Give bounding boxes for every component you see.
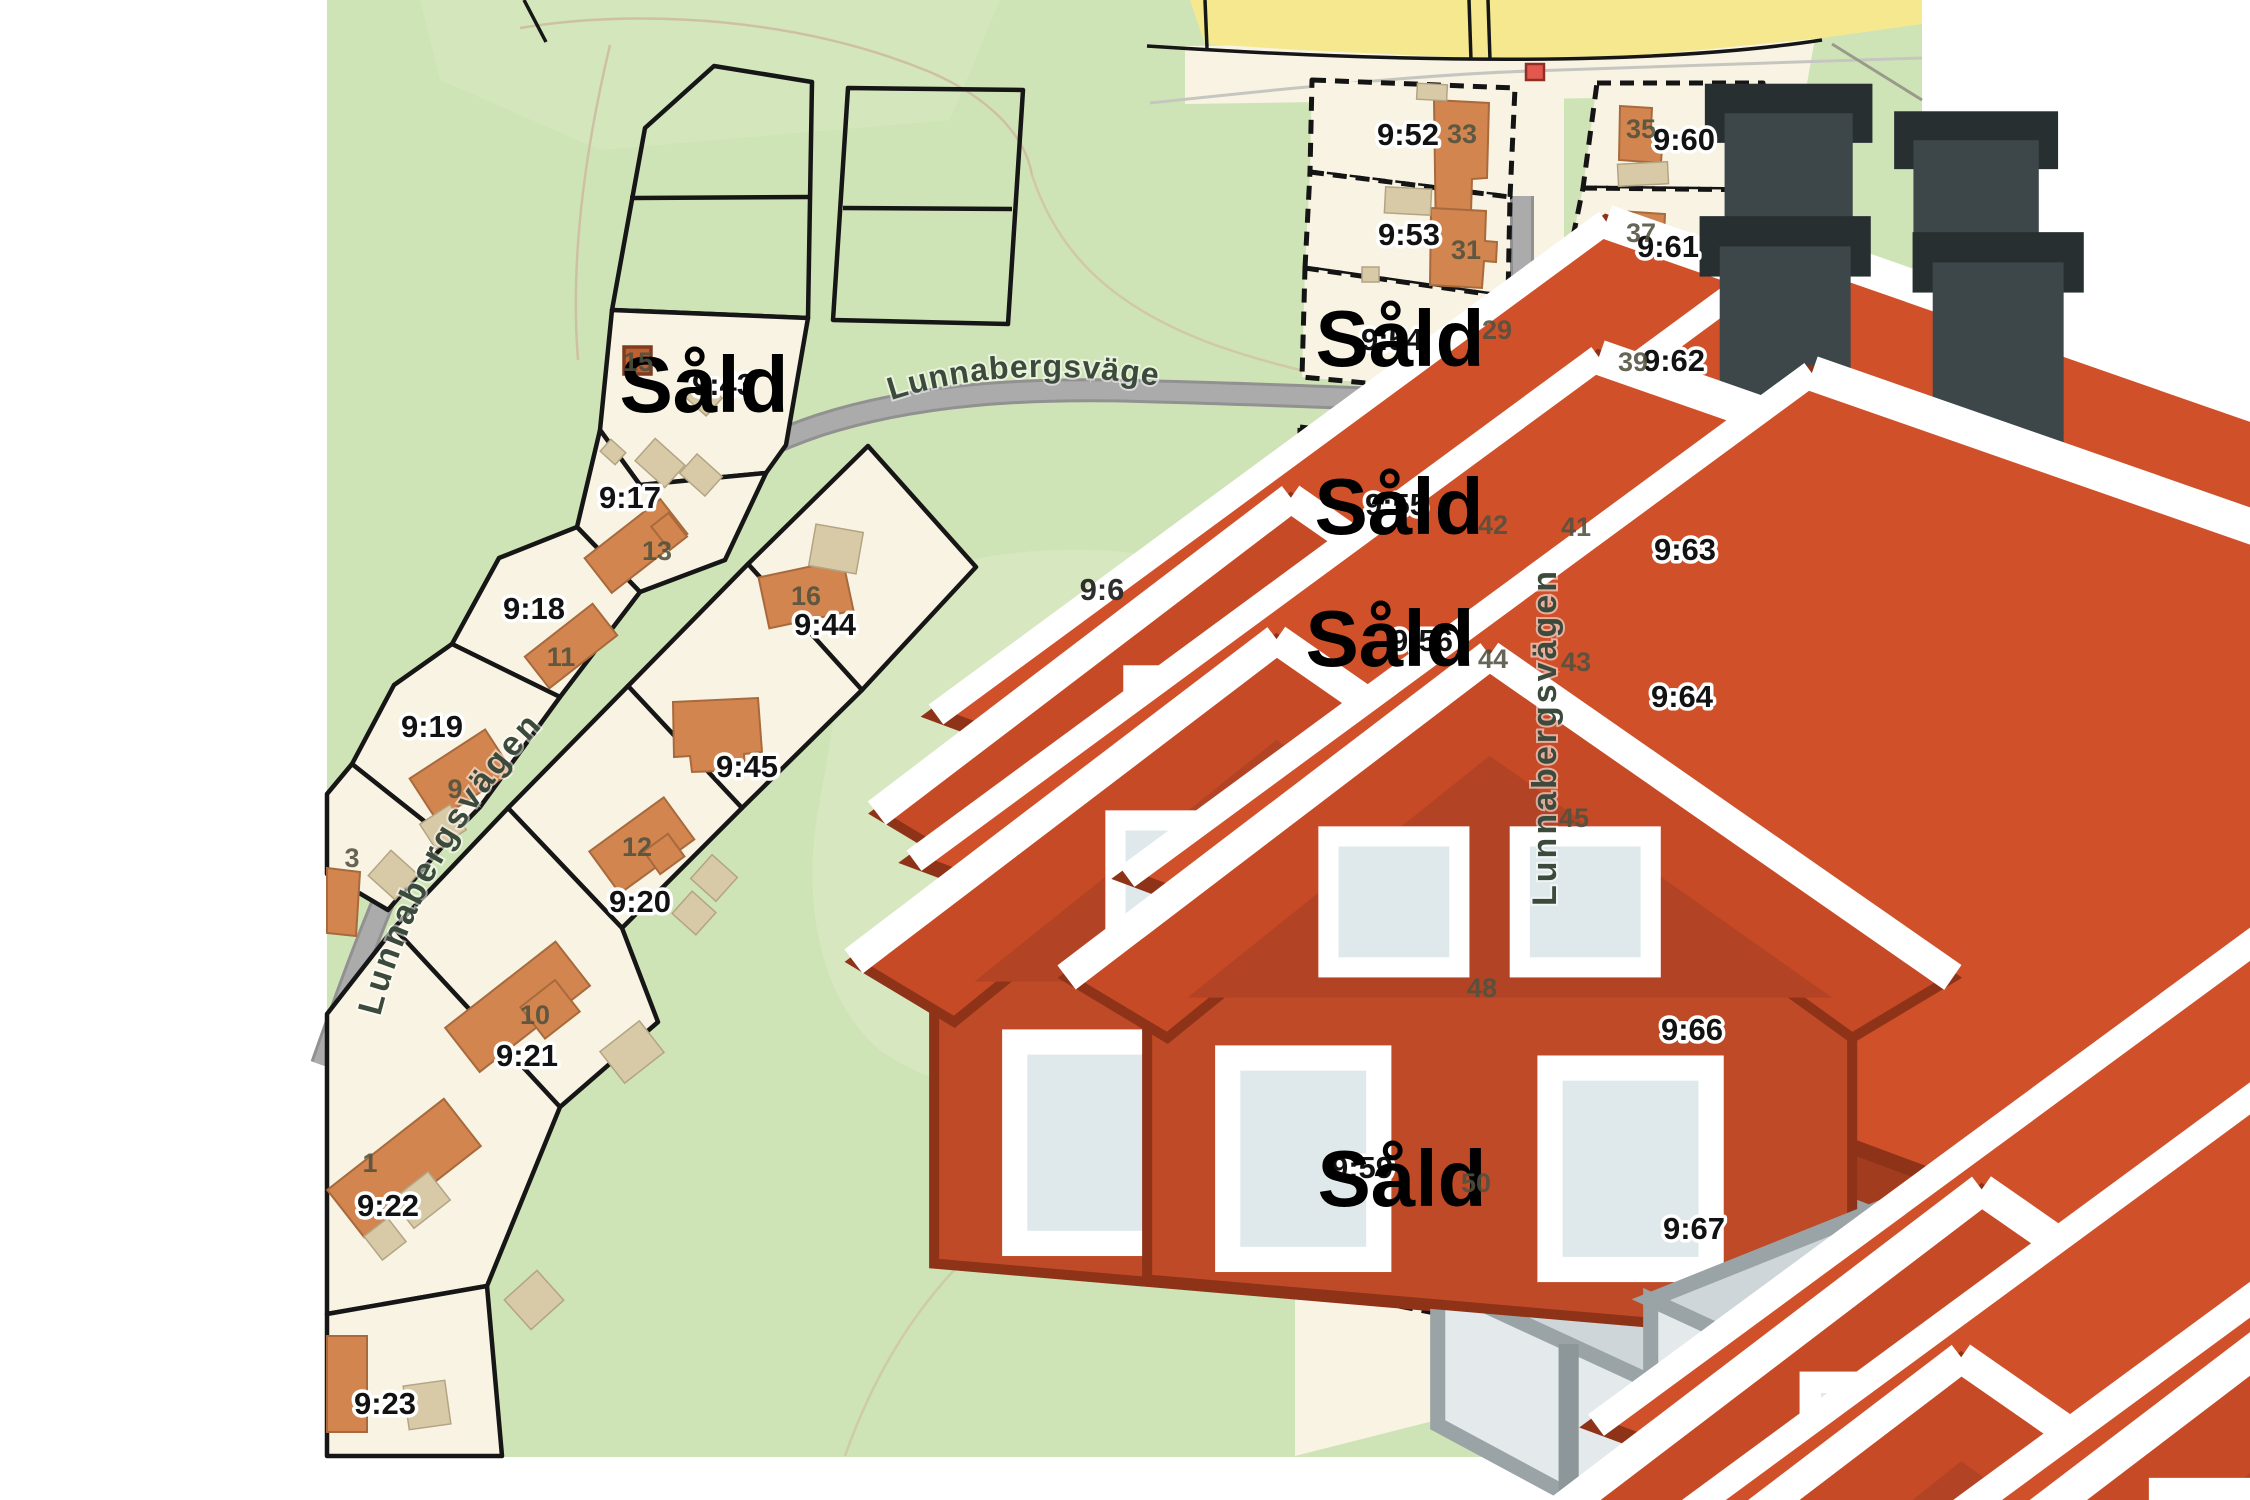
- sold-label: Såld: [1316, 294, 1485, 383]
- sold-label: Såld: [1315, 462, 1484, 551]
- house-number-43: 43: [1561, 647, 1591, 677]
- house-number-37: 37: [1626, 218, 1656, 248]
- parcel-label-9-64: 9:64: [1651, 679, 1714, 714]
- house-number-16: 16: [791, 581, 821, 611]
- house-number-12: 12: [622, 832, 652, 862]
- building-3: [327, 868, 360, 936]
- house-number-50: 50: [1461, 1168, 1491, 1198]
- house-number-48: 48: [1467, 973, 1497, 1003]
- street-label-lunnabergsvagen-vertical: Lunnabergsvägen: [1526, 568, 1564, 906]
- parcel-label-9-53: 9:53: [1378, 217, 1440, 252]
- parcel-label-9-17: 9:17: [599, 480, 661, 515]
- parcel-divider: [630, 197, 810, 198]
- house-number-11: 11: [547, 642, 576, 672]
- field-boundary: [1205, 0, 1207, 48]
- shed: [1384, 187, 1431, 215]
- house-number-15: 15: [623, 347, 653, 377]
- house-number-1: 1: [362, 1148, 377, 1178]
- parcel-label-9-62: 9:62: [1643, 343, 1705, 378]
- parcel-label-9-63: 9:63: [1654, 532, 1716, 567]
- map-page: 9:43 9:54 9:55 9:56 9:59 Såld Såld Såld …: [0, 0, 2250, 1500]
- parcel-label-9-60: 9:60: [1653, 122, 1715, 157]
- house-number-35: 35: [1626, 114, 1656, 144]
- field-boundary: [1488, 0, 1490, 60]
- parcel-label-9-18: 9:18: [503, 591, 565, 626]
- area-label-9-6: 9:6: [1080, 572, 1125, 607]
- parcel-label-9-21: 9:21: [496, 1038, 558, 1073]
- shed: [809, 524, 864, 574]
- parcel-label-9-20: 9:20: [609, 884, 671, 919]
- red-square-marker: [1526, 64, 1544, 80]
- house-number-3: 3: [344, 843, 359, 873]
- parcel-divider: [843, 208, 1012, 209]
- parcel-label-9-44: 9:44: [794, 607, 857, 642]
- parcel-label-9-66: 9:66: [1661, 1012, 1723, 1047]
- map-canvas: 9:43 9:54 9:55 9:56 9:59 Såld Såld Såld …: [0, 0, 2250, 1500]
- field-boundary: [1469, 0, 1471, 60]
- parcel-label-9-67: 9:67: [1663, 1211, 1725, 1246]
- house-number-31: 31: [1451, 235, 1481, 265]
- shed: [1417, 83, 1448, 101]
- house-number-44: 44: [1478, 644, 1508, 674]
- parcel-label-9-23: 9:23: [354, 1386, 416, 1421]
- street-label-text: Lunnabergsvägen: [1526, 568, 1564, 906]
- shed: [1617, 162, 1668, 187]
- house-number-33: 33: [1447, 119, 1477, 149]
- parcel-label-9-52: 9:52: [1377, 117, 1439, 152]
- house-number-29: 29: [1482, 315, 1512, 345]
- parcel-label-9-45: 9:45: [716, 749, 778, 784]
- shed: [1362, 267, 1379, 282]
- house-number-39: 39: [1618, 347, 1648, 377]
- house-number-13: 13: [642, 536, 672, 566]
- sold-label: Såld: [1306, 594, 1475, 683]
- house-number-41: 41: [1561, 512, 1591, 542]
- house-number-42: 42: [1478, 510, 1508, 540]
- parcel-label-9-19: 9:19: [401, 709, 463, 744]
- parcel-label-9-22: 9:22: [357, 1188, 419, 1223]
- house-number-10: 10: [520, 1000, 550, 1030]
